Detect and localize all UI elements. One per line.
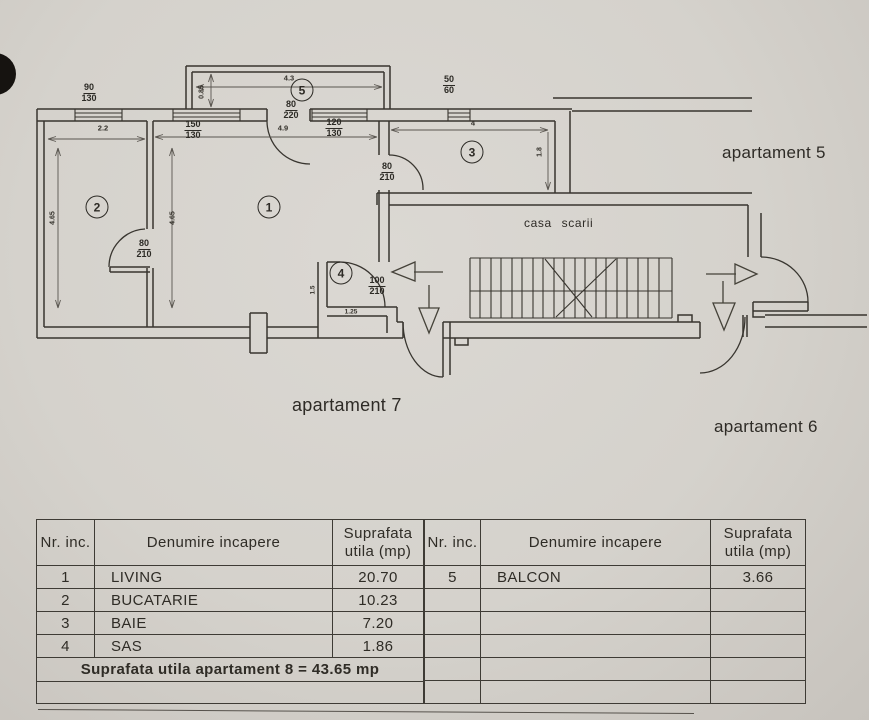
cell-nr: 5 xyxy=(425,566,481,589)
cell-nr: 3 xyxy=(37,612,95,635)
header-nr: Nr. inc. xyxy=(425,520,481,566)
dim-bath-width: 4 xyxy=(471,119,475,128)
cell-area-empty xyxy=(711,612,805,635)
scanned-floor-plan-page: { "plan": { "apartments": { "ap5": "apar… xyxy=(0,0,869,720)
header-area-line1: Suprafata xyxy=(344,525,413,542)
header-area: Suprafata utila (mp) xyxy=(711,520,805,566)
cell-nr-empty xyxy=(425,681,481,703)
cell-area: 10.23 xyxy=(333,589,423,612)
cell-area-empty xyxy=(711,681,805,703)
cell-nr: 1 xyxy=(37,566,95,589)
label-door-100-210-entry: 100210 xyxy=(368,276,385,297)
dim-sas-width: 1.25 xyxy=(345,309,358,316)
room-number-4: 4 xyxy=(330,262,353,285)
room-number-1: 1 xyxy=(258,196,281,219)
label-window-90-130: 90130 xyxy=(81,83,96,104)
empty-row xyxy=(37,682,423,703)
room-number-3: 3 xyxy=(461,141,484,164)
cell-area-empty xyxy=(711,658,805,681)
dim-bath-depth: 1.8 xyxy=(537,147,544,157)
area-tables: Nr. inc. Denumire incapere Suprafata uti… xyxy=(36,519,806,704)
cell-nr-empty xyxy=(425,658,481,681)
label-door-80-220: 80220 xyxy=(283,100,298,121)
cell-room-name: BALCON xyxy=(481,566,711,589)
dim-living-width: 4.9 xyxy=(278,124,288,133)
cell-room-name-empty xyxy=(481,635,711,658)
cell-area-empty xyxy=(711,589,805,612)
apartment-5-label: apartament 5 xyxy=(722,143,826,163)
cell-room-name-empty xyxy=(481,612,711,635)
cell-nr-empty xyxy=(425,612,481,635)
cell-nr-empty xyxy=(425,635,481,658)
total-area-row: Suprafata utila apartament 8 = 43.65 mp xyxy=(37,658,423,682)
label-window-120-130: 120130 xyxy=(325,118,342,139)
room-number-5: 5 xyxy=(291,79,314,102)
area-table-left: Nr. inc. Denumire incapere Suprafata uti… xyxy=(36,519,424,704)
cell-area: 3.66 xyxy=(711,566,805,589)
label-window-150-130: 150130 xyxy=(184,120,201,141)
cell-nr-empty xyxy=(425,589,481,612)
header-area-line2: utila (mp) xyxy=(725,543,792,560)
area-table-right: Nr. inc. Denumire incapere Suprafata uti… xyxy=(424,519,806,704)
page-edge-line xyxy=(38,709,694,714)
header-area-line1: Suprafata xyxy=(724,525,793,542)
header-area: Suprafata utila (mp) xyxy=(333,520,423,566)
dim-kitchen-width: 2.2 xyxy=(98,124,108,133)
header-area-line2: utila (mp) xyxy=(345,543,412,560)
header-name: Denumire incapere xyxy=(481,520,711,566)
header-name: Denumire incapere xyxy=(95,520,333,566)
cell-room-name-empty xyxy=(481,681,711,703)
label-door-80-210-bath: 80210 xyxy=(379,162,394,183)
cell-room-name: BUCATARIE xyxy=(95,589,333,612)
dim-living-depth: 4.65 xyxy=(170,211,177,225)
apartment-6-label: apartament 6 xyxy=(714,417,818,437)
cell-room-name-empty xyxy=(481,658,711,681)
label-door-80-210-kitchen: 80210 xyxy=(136,239,151,260)
apartment-7-label: apartament 7 xyxy=(292,395,402,416)
cell-area: 20.70 xyxy=(333,566,423,589)
label-window-50-60: 5060 xyxy=(443,75,455,96)
cell-area-empty xyxy=(711,635,805,658)
dim-kitchen-depth: 4.65 xyxy=(50,211,57,225)
dim-sas-depth: 1.5 xyxy=(310,285,317,294)
dim-balcony-depth: 0.85 xyxy=(199,85,206,99)
cell-nr: 2 xyxy=(37,589,95,612)
cell-room-name-empty xyxy=(481,589,711,612)
cell-room-name: SAS xyxy=(95,635,333,658)
cell-area: 1.86 xyxy=(333,635,423,658)
header-nr: Nr. inc. xyxy=(37,520,95,566)
cell-room-name: LIVING xyxy=(95,566,333,589)
cell-room-name: BAIE xyxy=(95,612,333,635)
cell-nr: 4 xyxy=(37,635,95,658)
staircase xyxy=(470,258,672,318)
stairwell-label: casa scarii xyxy=(524,216,593,230)
window-symbols xyxy=(75,109,470,121)
room-number-2: 2 xyxy=(86,196,109,219)
floor-plan: 90130 150130 80220 120130 5060 80210 802… xyxy=(0,0,869,500)
cell-area: 7.20 xyxy=(333,612,423,635)
